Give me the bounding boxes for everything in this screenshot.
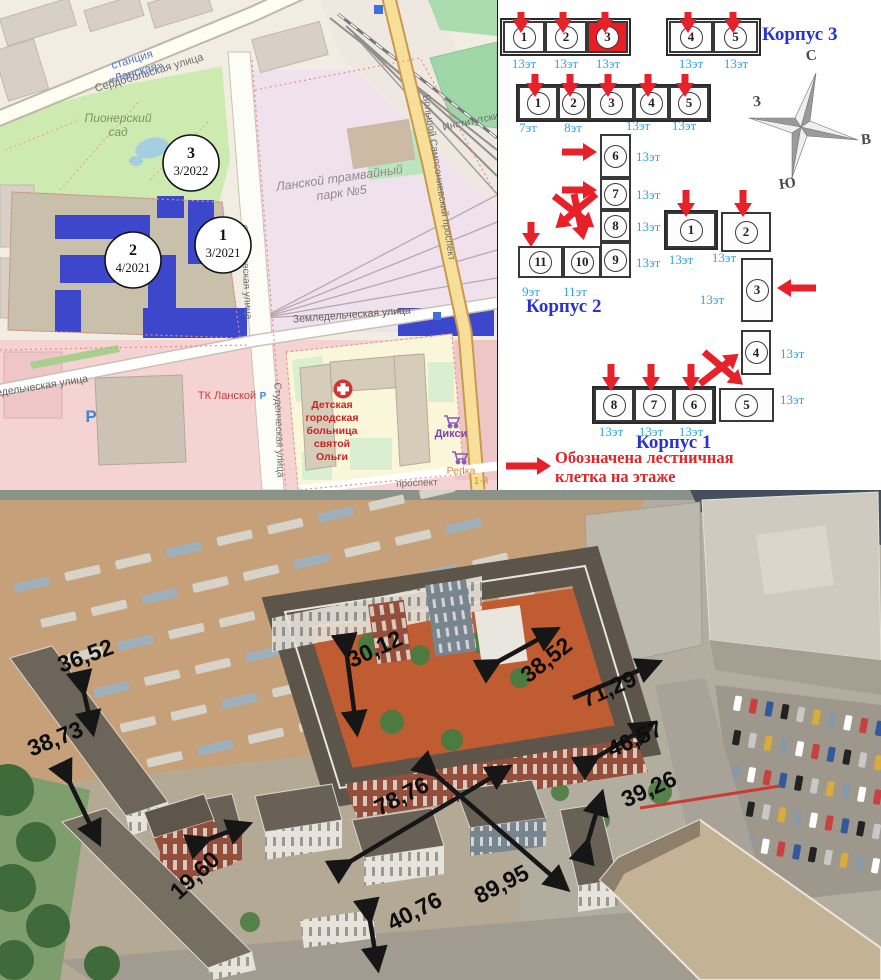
korpus1-section-8: 8: [594, 388, 634, 422]
korpus2-section-2: 2: [558, 86, 589, 120]
screenshot-root: Сердобольская улицастанция«Ланская»Пионе…: [0, 0, 881, 980]
hospital-cross-icon: [334, 380, 353, 399]
marker-date: 3/2021: [206, 246, 241, 260]
section-number: 10: [571, 251, 594, 274]
section-number: 2: [735, 221, 758, 244]
floor-count-label: 13эт: [636, 187, 660, 203]
map-label-street_prospekt: проспект: [396, 477, 438, 489]
korpus2-section-1: 1: [518, 86, 558, 120]
korpus3-section-3: 3: [587, 21, 628, 53]
korpus2-section-5: 5: [669, 86, 709, 120]
marker-date: 4/2021: [116, 261, 151, 275]
korpus1-section-2: 2: [721, 212, 771, 252]
building-scheme-panel: Корпус 3 Корпус 2 Корпус 1 С В Ю З 12345…: [498, 0, 881, 490]
korpus2-section-10: 10: [563, 246, 601, 278]
map-marker-1: 13/2021: [195, 217, 251, 273]
korpus1-section-6: 6: [674, 388, 714, 422]
floor-count-label: 13эт: [679, 424, 703, 440]
floor-count-label: 7эт: [519, 120, 537, 136]
section-number: 7: [643, 394, 666, 417]
floor-count-label: 13эт: [639, 424, 663, 440]
floor-count-label: 13эт: [636, 219, 660, 235]
section-number: 4: [745, 341, 768, 364]
floor-count-label: 13эт: [636, 149, 660, 165]
section-number: 3: [746, 279, 769, 302]
korpus2-section-4: 4: [634, 86, 669, 120]
floor-count-label: 13эт: [780, 346, 804, 362]
section-number: 5: [724, 26, 747, 49]
section-number: 5: [735, 394, 758, 417]
section-number: 1: [513, 26, 536, 49]
floor-count-label: 13эт: [724, 56, 748, 72]
marker-date: 3/2022: [174, 164, 209, 178]
rooftop-unit: [756, 525, 834, 594]
stair-arrow: [562, 142, 596, 162]
section-number: 7: [604, 183, 627, 206]
marker-number: 1: [219, 227, 227, 244]
floor-count-label: 13эт: [626, 118, 650, 134]
section-number: 8: [603, 394, 626, 417]
aerial-render: 36,5230,1238,5271,2946,5739,2638,7378,76…: [0, 490, 881, 980]
pond: [129, 156, 143, 166]
map-marker-2: 24/2021: [105, 232, 161, 288]
section-number: 2: [555, 26, 578, 49]
korpus3-section-5: 5: [713, 21, 758, 53]
floor-count-label: 8эт: [564, 120, 582, 136]
korpus2-section-3: 3: [589, 86, 634, 120]
korpus1-section-5: 5: [719, 388, 774, 422]
korpus1-section-7: 7: [634, 388, 674, 422]
map-image: Сердобольская улицастанция«Ланская»Пионе…: [0, 0, 497, 490]
mall-building: [95, 375, 186, 465]
floor-count-label: 13эт: [554, 56, 578, 72]
stair-arrow: [564, 192, 593, 241]
floor-count-label: 13эт: [679, 56, 703, 72]
map-marker-3: 33/2022: [163, 135, 219, 191]
section-number: 4: [680, 26, 703, 49]
korpus2-section-11: 11: [518, 246, 563, 278]
korpus2-section-9: 9: [600, 242, 631, 278]
map-label-shop_repka: Репка: [447, 465, 476, 477]
compass-south-label: Ю: [778, 175, 797, 194]
section-number: 6: [604, 145, 627, 168]
section-number: 11: [529, 251, 552, 274]
map-label-parking_big: P: [85, 407, 96, 426]
floor-count-label: 9эт: [522, 284, 540, 300]
compass-east-label: В: [860, 132, 871, 150]
floor-count-label: 13эт: [780, 392, 804, 408]
section-number: 4: [640, 92, 663, 115]
stair-arrow: [562, 180, 596, 200]
section-number: 6: [683, 394, 706, 417]
section-number: 5: [678, 92, 701, 115]
section-number: 3: [600, 92, 623, 115]
floor-count-label: 11эт: [563, 284, 587, 300]
section-number: 3: [596, 26, 619, 49]
legend-text: Обозначена лестничная клетка на этаже: [555, 448, 780, 486]
marker-number: 3: [187, 145, 195, 162]
floor-count-label: 13эт: [672, 118, 696, 134]
stair-arrow: [548, 188, 600, 235]
map-label-parking_small: P: [260, 391, 267, 402]
stair-arrow: [778, 278, 816, 298]
korpus3-section-2: 2: [545, 21, 587, 53]
section-number: 1: [680, 219, 703, 242]
aerial-render-panel: 36,5230,1238,5271,2946,5739,2638,7378,76…: [0, 490, 881, 980]
korpus2-section-7: 7: [600, 178, 631, 210]
floor-count-label: 13эт: [599, 424, 623, 440]
floor-count-label: 13эт: [512, 56, 536, 72]
map-panel: Сердобольская улицастанция«Ланская»Пионе…: [0, 0, 498, 490]
station-icon: [374, 5, 383, 14]
station-icon: [433, 312, 441, 320]
stair-arrow: [521, 222, 541, 246]
section-number: 9: [604, 249, 627, 272]
floor-count-label: 13эт: [700, 292, 724, 308]
stair-arrow: [550, 186, 603, 235]
korpus2-section-8: 8: [600, 210, 631, 242]
map-label-mall: ТК Ланской: [198, 390, 256, 402]
floor-count-label: 13эт: [712, 250, 736, 266]
floor-count-label: 13эт: [636, 255, 660, 271]
floor-count-label: 13эт: [596, 56, 620, 72]
floor-count-label: 13эт: [669, 252, 693, 268]
korpus1-section-4: 4: [741, 330, 771, 375]
stair-arrow: [506, 456, 550, 476]
map-label-shop_diksi: Дикси: [435, 428, 468, 440]
korpus1-section-1: 1: [666, 212, 716, 248]
section-number: 2: [562, 92, 585, 115]
marker-number: 2: [129, 242, 137, 259]
korpus1-section-3: 3: [741, 258, 773, 322]
korpus3-section-4: 4: [669, 21, 713, 53]
compass-north-label: С: [805, 47, 818, 65]
korpus2-section-6: 6: [600, 134, 631, 178]
map-label-street_1y: 1-й: [474, 476, 488, 487]
section-number: 1: [527, 92, 550, 115]
section-number: 8: [604, 215, 627, 238]
korpus3-section-1: 1: [503, 21, 545, 53]
